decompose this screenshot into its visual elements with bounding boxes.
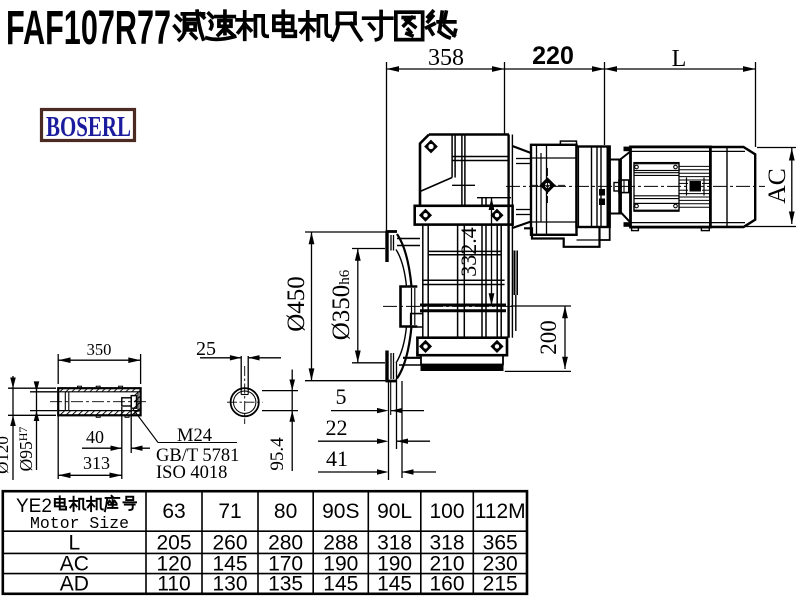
svg-text:205: 205 (156, 532, 191, 555)
svg-text:L: L (69, 532, 81, 555)
svg-text:22: 22 (326, 415, 348, 440)
svg-text:260: 260 (212, 532, 247, 555)
svg-text:25: 25 (196, 338, 216, 360)
svg-text:220: 220 (532, 42, 574, 70)
svg-text:AD: AD (60, 573, 89, 596)
svg-text:Motor Size: Motor Size (30, 514, 129, 533)
svg-text:135: 135 (268, 573, 303, 596)
svg-text:90L: 90L (377, 500, 412, 523)
svg-text:112M: 112M (475, 500, 526, 523)
svg-text:100: 100 (429, 500, 464, 523)
svg-text:145: 145 (323, 573, 358, 596)
svg-text:313: 313 (83, 453, 110, 473)
svg-text:95.4: 95.4 (267, 437, 288, 471)
svg-text:200: 200 (536, 320, 561, 355)
svg-text:M24: M24 (177, 426, 212, 446)
svg-text:365: 365 (483, 532, 518, 555)
svg-text:350: 350 (87, 340, 112, 359)
svg-text:40: 40 (86, 427, 104, 447)
svg-text:288: 288 (323, 532, 358, 555)
svg-text:280: 280 (268, 532, 303, 555)
svg-text:Ø450: Ø450 (283, 276, 310, 332)
svg-text:160: 160 (429, 573, 464, 596)
svg-text:ISO 4018: ISO 4018 (156, 463, 227, 483)
svg-text:Ø120: Ø120 (0, 436, 12, 474)
svg-text:FAF107R77: FAF107R77 (6, 2, 171, 55)
svg-text:AC: AC (762, 168, 791, 203)
svg-text:5: 5 (336, 384, 347, 409)
svg-text:318: 318 (429, 532, 464, 555)
svg-text:41: 41 (326, 446, 348, 471)
svg-text:130: 130 (212, 573, 247, 596)
svg-text:63: 63 (162, 500, 185, 523)
svg-text:318: 318 (377, 532, 412, 555)
svg-text:71: 71 (218, 500, 241, 523)
svg-text:145: 145 (377, 573, 412, 596)
svg-text:358: 358 (428, 45, 464, 71)
svg-text:110: 110 (157, 573, 190, 596)
svg-text:80: 80 (274, 500, 297, 523)
svg-text:90S: 90S (322, 500, 359, 523)
svg-text:332.4: 332.4 (456, 227, 481, 277)
svg-text:BOSERL: BOSERL (46, 111, 131, 143)
svg-text:L: L (672, 46, 687, 72)
svg-text:215: 215 (483, 573, 518, 596)
